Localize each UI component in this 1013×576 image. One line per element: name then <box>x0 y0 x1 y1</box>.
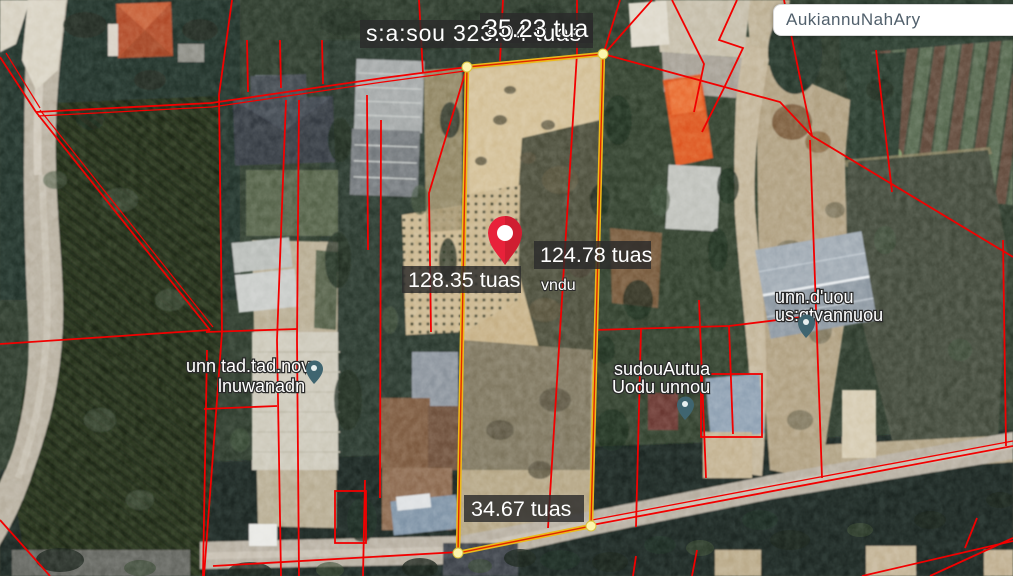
svg-text:128.35 tuas: 128.35 tuas <box>408 268 520 292</box>
svg-text:sudouAutua: sudouAutua <box>614 359 711 379</box>
svg-text:us:qtvannuou: us:qtvannuou <box>775 305 883 325</box>
svg-text:unn.d'uou: unn.d'uou <box>775 287 854 307</box>
svg-text:lnuwanadn: lnuwanadn <box>218 376 305 396</box>
svg-text:vndu: vndu <box>541 277 576 294</box>
svg-text:34.67 tuas: 34.67 tuas <box>471 497 571 521</box>
svg-text:Uodu unnou: Uodu unnou <box>612 377 710 397</box>
svg-text:unn tad.tad.nov: unn tad.tad.nov <box>186 356 310 376</box>
svg-text:124.78 tuas: 124.78 tuas <box>540 243 652 267</box>
svg-text:35.23 tua: 35.23 tua <box>484 15 588 43</box>
